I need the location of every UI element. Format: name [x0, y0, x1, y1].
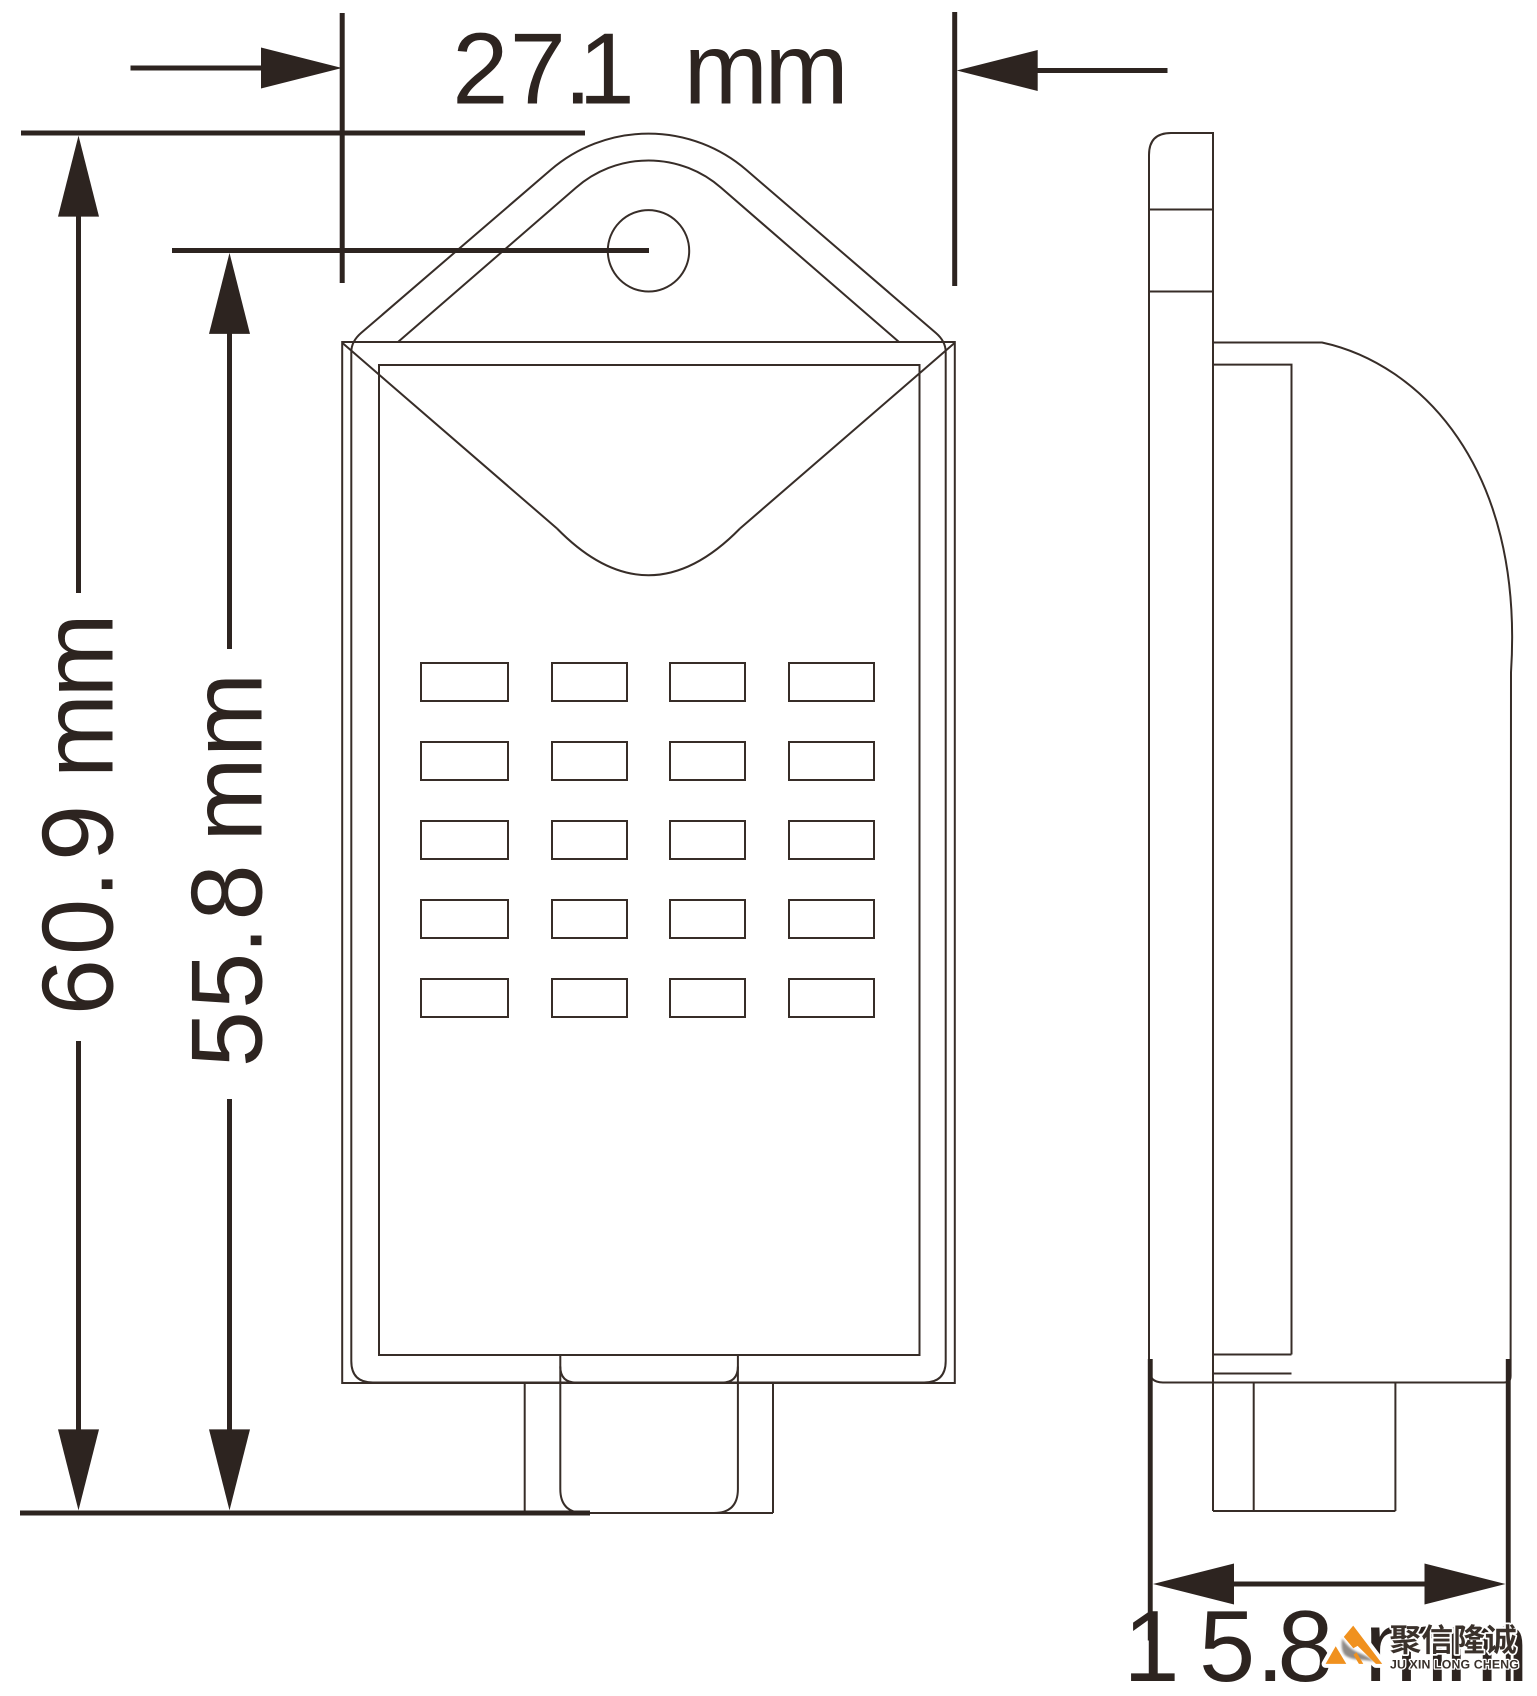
svg-text:m: m	[172, 673, 284, 757]
svg-text:1: 1	[1123, 1591, 1179, 1696]
svg-text:.: .	[172, 926, 284, 954]
svg-text:m: m	[23, 694, 135, 778]
svg-text:0: 0	[23, 899, 135, 955]
svg-text:6: 6	[23, 959, 135, 1015]
svg-text:1: 1	[579, 13, 635, 125]
svg-text:m: m	[23, 613, 135, 697]
svg-text:5: 5	[172, 953, 284, 1009]
svg-text:27: 27	[452, 13, 567, 125]
svg-text:mm: mm	[684, 13, 846, 125]
svg-text:8: 8	[1277, 1591, 1333, 1696]
svg-text:8: 8	[172, 864, 284, 920]
svg-text:.: .	[23, 870, 135, 898]
svg-text:9: 9	[23, 805, 135, 861]
svg-text:5: 5	[172, 1011, 284, 1067]
svg-text:m: m	[172, 757, 284, 841]
svg-text:5: 5	[1199, 1591, 1255, 1696]
